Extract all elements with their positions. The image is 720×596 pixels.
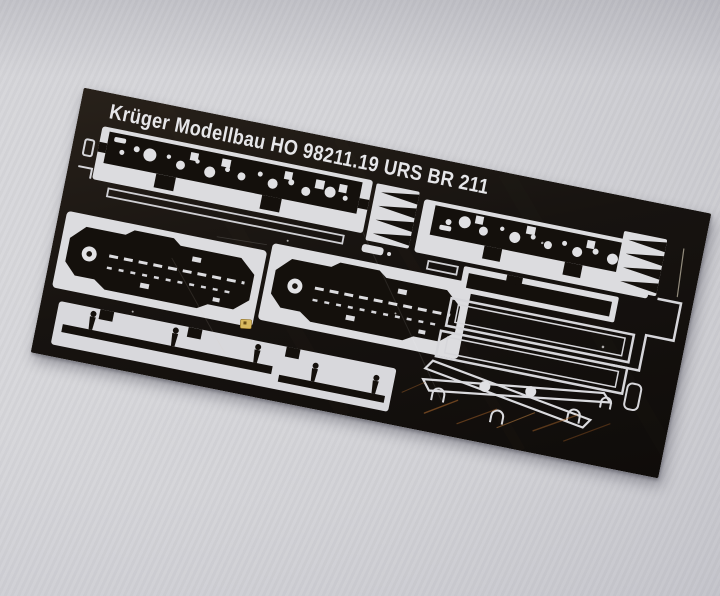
etched-fret-sheet: Krüger Modellbau HO 98211.19 URS BR 211 [31,88,712,479]
etched-fret-graphic: Krüger Modellbau HO 98211.19 URS BR 211 [31,88,712,479]
photo-paper-background: Krüger Modellbau HO 98211.19 URS BR 211 [0,0,720,596]
brass-chip [240,319,252,329]
